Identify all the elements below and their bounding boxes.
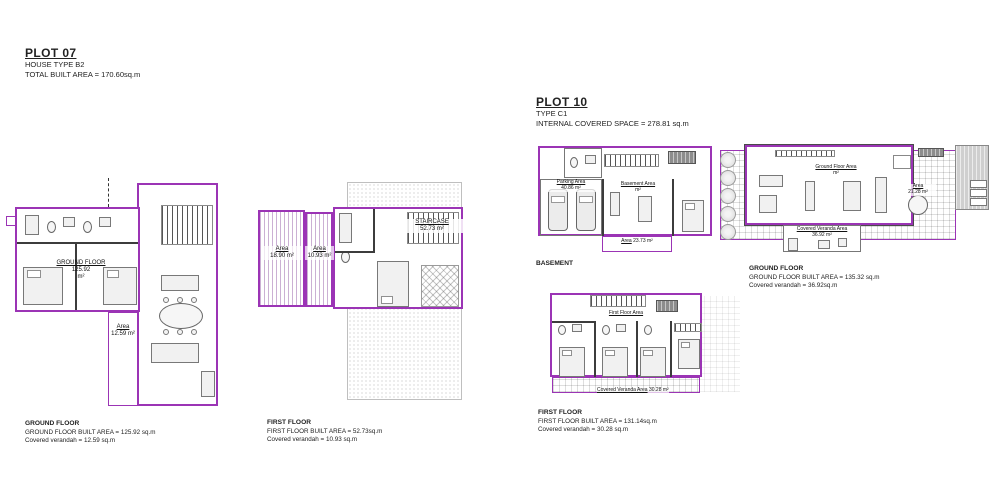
counter-icon [875,177,887,213]
wardrobe-icon [674,323,702,332]
ff-veranda-area-value: 30.28 m² [649,387,669,393]
dining-table-icon [159,303,203,329]
caption-built-area: GROUND FLOOR BUILT AREA = 135.32 sq.m [749,274,879,283]
armchair-icon [759,195,777,213]
basement-bathroom [564,148,602,178]
sink-icon [616,324,626,332]
plot07-house-type: HOUSE TYPE B2 [25,60,140,70]
caption-title: FIRST FLOOR [267,419,382,428]
first-floor-veranda: Covered Veranda Area 30.28 m² [552,377,700,393]
gate-slot [970,189,987,197]
bedroom-wing: GROUND FLOOR 125.92 m² [15,207,140,312]
sink-icon [585,155,596,164]
plot10-title: PLOT 10 [536,95,689,109]
pillow-icon [27,270,41,278]
pillow-icon [562,350,572,356]
plot10-basement-caption: BASEMENT [536,260,573,269]
caption-title: GROUND FLOOR [25,420,155,429]
chair-icon [177,329,183,335]
caption-verandah: Covered verandah = 36.92sq.m [749,282,879,291]
interior-wall [552,321,594,323]
veranda2-area-label: Area 10.93 m² [305,246,334,260]
plot07-ground-caption: GROUND FLOOR GROUND FLOOR BUILT AREA = 1… [25,420,155,446]
staircase-icon [775,150,835,157]
tree-icon [720,206,736,222]
room-name: First Floor Area [609,310,643,316]
bed-icon [640,347,666,377]
table-icon [638,196,652,222]
basement-room-unit: m² [635,187,641,193]
room-unit: m² [833,170,839,176]
caption-verandah: Covered verandah = 12.59 sq.m [25,437,155,446]
parking-area-value: 40.86 m² [561,185,581,191]
staircase-icon [161,205,213,245]
bed-icon [678,339,700,369]
bed-icon [559,347,585,377]
pillow-icon [681,342,690,348]
patio-table-icon [908,195,928,215]
verandah-name: Area [117,324,130,330]
caption-built-area: FIRST FLOOR BUILT AREA = 131.14sq.m [538,418,657,427]
plot10-ground-caption: GROUND FLOOR GROUND FLOOR BUILT AREA = 1… [749,265,879,291]
caption-title: FIRST FLOOR [538,409,657,418]
veranda2-name: Area [313,246,326,252]
sink-icon [99,217,111,227]
room-area-value: 125.92 [72,267,90,273]
interior-wall [602,179,604,236]
plot07-total-area: TOTAL BUILT AREA = 170.60sq.m [25,70,140,80]
sink-icon [63,217,75,227]
chair-icon [191,297,197,303]
veranda1-area-value: 18.90 m² [270,253,294,259]
tree-icon [720,224,736,240]
stairwell-hatch [656,300,678,312]
veranda2-area-value: 10.93 m² [308,253,332,259]
verandah-area-value: 12.59 m² [111,331,135,337]
covered-veranda-label: Covered Veranda Area 36.92 m² [784,227,860,239]
pillow-icon [381,296,393,304]
parking-area-label: Parking Area 40.86 m² [542,180,600,192]
kitchen-island-icon [161,275,199,291]
tree-icon [720,188,736,204]
ground-floor-room-label: GROUND FLOOR 125.92 m² [41,260,121,281]
covered-veranda: Covered Veranda Area 36.92 m² [783,225,861,252]
chair-icon [163,329,169,335]
bottom-area-name: Area [621,238,632,244]
caption-built-area: GROUND FLOOR BUILT AREA = 125.92 sq.m [25,429,155,438]
first-floor-outline: First Floor Area [550,293,702,377]
pillow-icon [605,350,615,356]
entry-landing [893,155,911,169]
caption-built-area: FIRST FLOOR BUILT AREA = 52.73sq.m [267,428,382,437]
basement-bottom-label: Area 23.73 m² [603,239,671,245]
staircase-label: STAIRCASE 52.73 m² [401,219,463,233]
terrace-below [698,296,740,392]
toilet-icon [644,325,652,335]
staircase-name: STAIRCASE [415,219,449,225]
ground-floor-area-label: Ground Floor Area m² [801,165,871,177]
plot10-ground-floor-plan: Ground Floor Area m² Covered Veranda Are… [712,140,992,260]
sink-icon [572,324,582,332]
plot10-internal-space: INTERNAL COVERED SPACE = 278.81 sq.m [536,119,689,129]
toilet-icon [602,325,610,335]
car-windshield [551,196,565,203]
caption-title: GROUND FLOOR [749,265,879,274]
basement-outline: Parking Area 40.86 m² Basement Area m² [538,146,712,236]
car-icon [576,189,596,231]
chair-icon [177,297,183,303]
plot07-title: PLOT 07 [25,46,140,60]
sofa-icon [610,192,620,216]
plot07-first-caption: FIRST FLOOR FIRST FLOOR BUILT AREA = 52.… [267,419,382,445]
staircase-area-value: 52.73 m² [420,226,444,232]
armchair-icon [838,238,847,247]
bathtub-icon [25,215,39,235]
tree-icon [720,152,736,168]
caption-verandah: Covered verandah = 10.93 sq.m [267,436,382,445]
veranda-area-value: 36.92 m² [812,232,832,238]
staircase-icon [590,295,646,307]
lightwell-hatch [668,151,696,164]
dashed-boundary-line [108,178,109,207]
chair-icon [191,329,197,335]
interior-wall [373,209,375,251]
bed-icon [682,200,704,232]
interior-wall [672,179,674,236]
ground-floor-block: Ground Floor Area m² [745,145,913,225]
toilet-icon [47,221,56,233]
plot10-first-caption: FIRST FLOOR FIRST FLOOR BUILT AREA = 131… [538,409,657,435]
living-wing [137,183,218,406]
terrace-area-value: 21.28 m² [908,189,928,195]
side-table-icon [201,371,215,397]
plot07-ground-floor-plan: GROUND FLOOR 125.92 m² Area 12.59 m² [14,178,244,418]
car-windshield [579,196,593,203]
ff-veranda-name: Covered Veranda Area [597,387,648,393]
room-name: GROUND FLOOR [56,260,105,266]
table-icon [818,240,830,249]
gate-slot [970,198,987,206]
floor-plan-sheet: PLOT 07 HOUSE TYPE B2 TOTAL BUILT AREA =… [0,0,1000,500]
first-floor-area-label: First Floor Area [594,311,658,317]
basement-bottom-area: Area 23.73 m² [602,236,672,252]
interior-wall [17,242,138,244]
plot10-title-block: PLOT 10 TYPE C1 INTERNAL COVERED SPACE =… [536,95,689,129]
sofa-icon [788,238,798,251]
interior-wall [594,321,596,379]
car-icon [548,189,568,231]
room-area-unit: m² [78,274,85,280]
plot07-title-block: PLOT 07 HOUSE TYPE B2 TOTAL BUILT AREA =… [25,46,140,80]
caption-title: BASEMENT [536,260,573,269]
chair-icon [163,297,169,303]
ff-veranda-label: Covered Veranda Area 30.28 m² [597,388,669,394]
kitchen-island-icon [805,181,815,211]
caption-verandah: Covered verandah = 30.28 sq.m [538,426,657,435]
wardrobe-icon [421,265,459,307]
veranda1-name: Area [276,246,289,252]
sofa-icon [151,343,199,363]
bed-icon [602,347,628,377]
plot10-first-floor-plan: First Floor Area [548,292,743,404]
plot10-basement-plan: Parking Area 40.86 m² Basement Area m² A… [538,143,738,255]
tree-icon [720,170,736,186]
bottom-area-value: 23.73 m² [633,238,653,244]
dining-table-icon [843,181,861,211]
toilet-icon [83,221,92,233]
interior-wall [636,321,638,379]
sofa-icon [759,175,783,187]
gate-slot [970,180,987,188]
interior-wall [670,321,672,379]
terrace-area-label: Area 21.28 m² [900,184,936,196]
first-floor-block: STAIRCASE 52.73 m² [333,207,463,309]
interior-wall [335,251,375,253]
veranda1-area-label: Area 18.90 m² [262,246,302,260]
bathtub-icon [339,213,352,243]
verandah-area-label: Area 12.59 m² [100,324,146,338]
pillow-icon [685,203,695,210]
entrance-structure [955,145,989,210]
toilet-icon [558,325,566,335]
basement-area-label: Basement Area m² [606,182,670,194]
pillow-icon [643,350,653,356]
plot07-first-floor-plan: STAIRCASE 52.73 m² Area 18.90 m² Area 10… [256,170,471,415]
pergola-hatch [918,148,944,157]
plot10-type: TYPE C1 [536,109,689,119]
staircase-icon [604,154,659,167]
bed-icon [377,261,409,307]
toilet-icon [570,157,578,168]
